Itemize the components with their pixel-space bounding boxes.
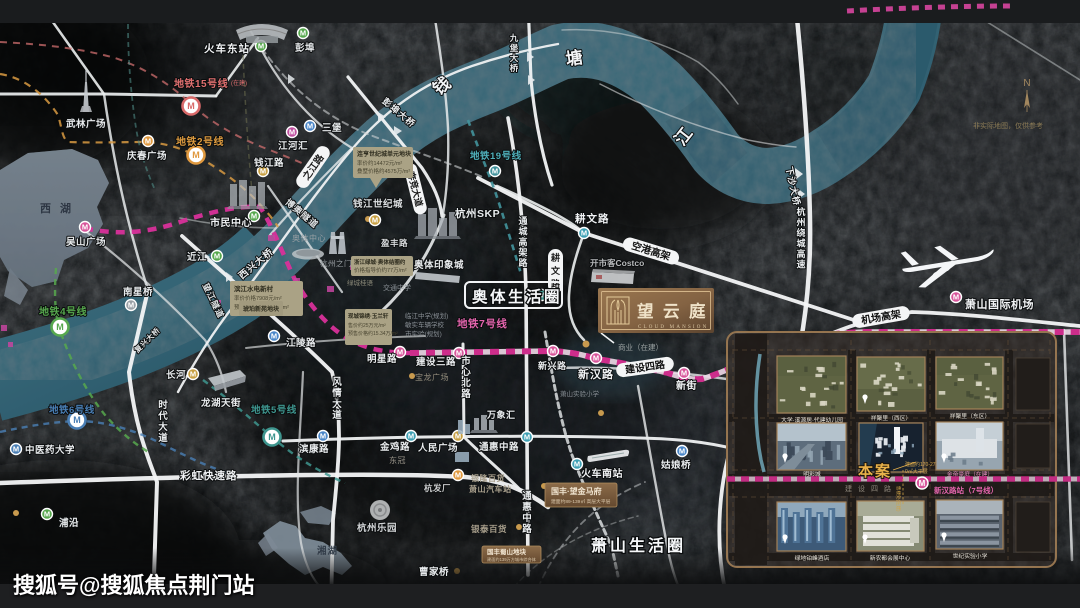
svg-text:M: M (919, 479, 926, 488)
svg-text:火车南站: 火车南站 (581, 467, 623, 480)
svg-text:钱江世纪城: 钱江世纪城 (353, 198, 403, 210)
svg-text:琥珀新苑地块: 琥珀新苑地块 (243, 305, 280, 313)
svg-text:建设四路: 建设四路 (845, 484, 897, 493)
svg-text:建面约89-139㎡ 高层大平层: 建面约89-139㎡ 高层大平层 (551, 498, 611, 505)
svg-text:塘: 塘 (564, 47, 584, 69)
svg-text:耕: 耕 (551, 252, 560, 263)
svg-text:望云庭: 望云庭 (637, 301, 715, 321)
svg-text:M: M (44, 510, 50, 519)
svg-text:地铁2号线: 地铁2号线 (176, 135, 224, 148)
svg-text:M: M (953, 293, 959, 302)
svg-text:M: M (190, 370, 196, 379)
svg-text:建面约170-27: 建面约170-27 (905, 461, 936, 468)
svg-text:萧山生活圈: 萧山生活圈 (591, 536, 686, 555)
svg-text:敏实车辆学校: 敏实车辆学校 (405, 320, 445, 329)
svg-text:东冠: 东冠 (389, 455, 406, 465)
svg-text:奥体中心: 奥体中心 (292, 233, 326, 243)
svg-text:通: 通 (518, 215, 527, 226)
svg-text:M: M (681, 369, 687, 378)
svg-text:滨江水电新村: 滨江水电新村 (234, 284, 274, 293)
svg-text:M: M (289, 128, 295, 137)
svg-text:地铁15号线: 地铁15号线 (174, 77, 228, 90)
svg-text:绿城桂语: 绿城桂语 (347, 278, 374, 287)
svg-text:(在建): (在建) (231, 79, 247, 87)
svg-text:浦沿: 浦沿 (59, 517, 79, 529)
svg-text:惠: 惠 (522, 501, 532, 513)
svg-text:M: M (524, 433, 530, 442)
svg-text:银泰百货: 银泰百货 (470, 524, 507, 534)
svg-text:M: M (455, 471, 461, 480)
svg-text:M: M (408, 432, 414, 441)
svg-text:情: 情 (331, 387, 342, 399)
svg-text:彭埠: 彭埠 (295, 42, 315, 54)
svg-text:代: 代 (157, 410, 168, 422)
svg-text:建设三路: 建设三路 (415, 356, 456, 368)
svg-text:心: 心 (461, 367, 471, 378)
svg-text:北: 北 (461, 377, 471, 389)
svg-text:新农都会展中心: 新农都会展中心 (870, 554, 911, 562)
svg-text:M: M (492, 167, 498, 176)
svg-text:武林广场: 武林广场 (66, 118, 106, 130)
svg-text:中: 中 (522, 512, 532, 524)
svg-text:长河: 长河 (166, 369, 186, 381)
svg-text:M: M (268, 432, 276, 442)
svg-text:高: 高 (518, 236, 527, 247)
svg-text:交通中学: 交通中学 (383, 283, 411, 292)
svg-text:银隆百货: 银隆百货 (470, 473, 505, 483)
svg-text:路: 路 (461, 388, 471, 400)
svg-text:现城锦绣·玉兰轩: 现城锦绣·玉兰轩 (348, 312, 389, 320)
svg-text:江陵路: 江陵路 (286, 337, 316, 349)
svg-text:南星桥: 南星桥 (123, 286, 153, 298)
svg-text:人民广场: 人民广场 (418, 442, 458, 454)
svg-text:M: M (320, 432, 326, 441)
svg-text:曹家桥: 曹家桥 (419, 566, 449, 578)
svg-text:M: M (82, 223, 88, 232)
svg-text:祥聚里（西区）: 祥聚里（西区） (871, 414, 912, 422)
svg-text:浙江绿城·奥体结圈约: 浙江绿城·奥体结圈约 (354, 258, 406, 266)
svg-text:绿地铂峰酒店: 绿地铂峰酒店 (795, 554, 830, 562)
svg-text:路: 路 (522, 523, 532, 535)
svg-text:杭州之门: 杭州之门 (320, 258, 352, 268)
svg-text:建面约139万方城市综合体: 建面约139万方城市综合体 (487, 556, 537, 563)
svg-text:M: M (214, 252, 220, 261)
svg-text:九: 九 (509, 33, 519, 43)
svg-text:绕: 绕 (796, 227, 805, 238)
svg-text:大: 大 (510, 53, 519, 63)
svg-text:M: M (574, 460, 580, 469)
svg-text:杭州SKP: 杭州SKP (455, 207, 500, 220)
svg-text:M: M (550, 347, 556, 356)
svg-text:N: N (1023, 78, 1030, 89)
svg-text:道: 道 (158, 432, 168, 444)
svg-text:M: M (372, 216, 378, 225)
svg-text:市: 市 (461, 355, 471, 367)
svg-text:M: M (145, 137, 151, 146)
svg-text:地铁19号线: 地铁19号线 (470, 150, 522, 162)
svg-text:M: M (271, 332, 277, 341)
svg-text:M: M (593, 354, 599, 363)
svg-text:桥: 桥 (510, 63, 519, 73)
svg-text:地铁7号线: 地铁7号线 (457, 317, 507, 330)
svg-text:CLOUD MANSION: CLOUD MANSION (638, 325, 708, 330)
svg-text:城: 城 (518, 226, 527, 237)
svg-text:国丰蜀山地块: 国丰蜀山地块 (487, 547, 527, 556)
svg-text:速: 速 (796, 259, 805, 270)
svg-text:售价约25万元/m²: 售价约25万元/m² (348, 322, 386, 329)
svg-text:新汉路站（7号线）: 新汉路站（7号线） (934, 485, 998, 495)
svg-text:售楼处(在建): 售楼处(在建) (895, 486, 902, 512)
svg-text:价格指导价约77万/m²: 价格指导价约77万/m² (354, 266, 407, 274)
svg-text:湘湖: 湘湖 (317, 545, 338, 557)
svg-text:彩虹快速路: 彩虹快速路 (179, 469, 238, 482)
svg-text:地铁4号线: 地铁4号线 (39, 305, 87, 318)
svg-text:萧山国际机场: 萧山国际机场 (965, 297, 1034, 311)
svg-text:杭州乐园: 杭州乐园 (357, 522, 397, 534)
svg-text:M: M (128, 301, 134, 310)
svg-text:非实际地图，仅供参考: 非实际地图，仅供参考 (973, 121, 1043, 130)
svg-text:M: M (397, 348, 403, 357)
svg-text:新汉路: 新汉路 (578, 367, 614, 381)
svg-text:M: M (73, 415, 81, 425)
svg-text:萧山实验小学: 萧山实验小学 (560, 389, 600, 398)
svg-text:三堡: 三堡 (322, 122, 342, 134)
svg-text:江河汇: 江河汇 (278, 140, 308, 152)
svg-text:杭发厂: 杭发厂 (424, 483, 451, 493)
svg-text:滨康路: 滨康路 (299, 443, 329, 455)
svg-text:市实验(规划): 市实验(规划) (405, 329, 442, 338)
svg-text:率价约14472元/m²: 率价约14472元/m² (357, 159, 402, 167)
svg-text:城: 城 (796, 238, 805, 249)
svg-text:州: 州 (795, 218, 805, 228)
svg-text:盈丰路: 盈丰路 (380, 238, 408, 248)
svg-text:本案: 本案 (858, 462, 892, 480)
svg-text:M: M (307, 122, 313, 131)
svg-text:文: 文 (550, 265, 561, 276)
svg-text:明星路: 明星路 (367, 353, 397, 365)
svg-text:路: 路 (518, 257, 528, 268)
svg-text:国丰·望金马府: 国丰·望金马府 (551, 486, 602, 496)
svg-text:大: 大 (332, 398, 342, 410)
svg-text:率价价格7908元/m²: 率价价格7908元/m² (234, 294, 282, 302)
svg-text:叠墅价格约4575万/m²: 叠墅价格约4575万/m² (357, 167, 410, 175)
svg-text:高: 高 (796, 248, 805, 259)
svg-text:金鸡路: 金鸡路 (379, 441, 410, 453)
svg-text:市民中心: 市民中心 (210, 216, 252, 229)
svg-text:0㎡大平层: 0㎡大平层 (905, 468, 928, 475)
svg-text:连亨世纪城单元地块: 连亨世纪城单元地块 (357, 150, 412, 158)
svg-text:近江: 近江 (187, 251, 207, 263)
svg-text:预售价格约15.34万/m²: 预售价格约15.34万/m² (348, 330, 398, 337)
svg-text:地铁6号线: 地铁6号线 (49, 404, 95, 416)
svg-text:万象汇: 万象汇 (486, 409, 516, 420)
svg-text:M: M (679, 447, 685, 456)
svg-text:火车东站: 火车东站 (204, 42, 250, 55)
svg-text:M: M (192, 150, 200, 160)
svg-text:M: M (13, 445, 19, 454)
svg-text:祥聚里（东区）: 祥聚里（东区） (950, 412, 991, 420)
svg-text:大: 大 (158, 421, 168, 433)
svg-text:奥体印象城: 奥体印象城 (413, 259, 464, 271)
svg-text:吴山广场: 吴山广场 (66, 236, 106, 248)
svg-text:时: 时 (158, 399, 168, 411)
svg-text:地铁5号线: 地铁5号线 (251, 404, 297, 416)
svg-text:中医药大学: 中医药大学 (25, 444, 75, 456)
svg-text:萧山汽车站: 萧山汽车站 (469, 484, 512, 494)
svg-text:奥体生活圈: 奥体生活圈 (472, 287, 562, 306)
svg-text:商业（在建）: 商业（在建） (618, 342, 663, 352)
svg-text:宝龙广场: 宝龙广场 (415, 372, 449, 382)
svg-text:开市客Costco: 开市客Costco (590, 258, 644, 268)
svg-text:庆春广场: 庆春广场 (126, 150, 167, 162)
svg-text:新兴路: 新兴路 (538, 360, 567, 371)
svg-text:M: M (581, 229, 587, 238)
svg-text:通惠中路: 通惠中路 (479, 441, 519, 453)
svg-text:架: 架 (517, 247, 527, 258)
svg-text:世纪实验小学: 世纪实验小学 (953, 552, 988, 560)
svg-text:M: M (56, 322, 64, 332)
svg-text:M: M (300, 29, 306, 38)
svg-text:道: 道 (332, 409, 342, 421)
svg-text:钱江路: 钱江路 (254, 157, 284, 169)
svg-text:西 湖: 西 湖 (40, 201, 74, 215)
svg-text:临江中学(规划): 临江中学(规划) (405, 311, 448, 320)
svg-text:姑娘桥: 姑娘桥 (661, 459, 691, 471)
svg-text:M: M (187, 101, 195, 111)
svg-text:堡: 堡 (510, 43, 519, 53)
svg-text:耕文路: 耕文路 (575, 212, 610, 225)
svg-text:龙湖天街: 龙湖天街 (200, 397, 241, 409)
svg-text:风: 风 (332, 377, 342, 388)
svg-text:杭: 杭 (796, 206, 805, 217)
svg-text:通: 通 (522, 491, 532, 502)
svg-text:新街: 新街 (676, 379, 697, 392)
